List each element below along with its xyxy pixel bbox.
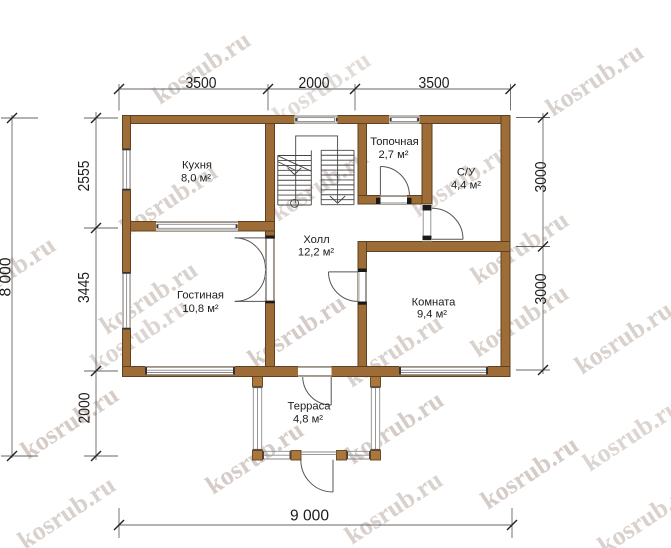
svg-text:3000: 3000 <box>533 161 550 192</box>
svg-text:3000: 3000 <box>533 273 550 304</box>
svg-text:8,0 м²: 8,0 м² <box>181 173 211 185</box>
svg-text:Гостиная: Гостиная <box>177 290 224 302</box>
svg-text:8 000: 8 000 <box>0 257 15 296</box>
svg-text:kosrub.ru: kosrub.ru <box>475 430 583 515</box>
svg-text:9,4 м²: 9,4 м² <box>417 309 447 321</box>
svg-text:kosrub.ru: kosrub.ru <box>569 295 671 380</box>
svg-text:kosrub.ru: kosrub.ru <box>592 475 671 548</box>
svg-text:kosrub.ru: kosrub.ru <box>147 25 255 110</box>
svg-text:Кухня: Кухня <box>182 160 212 172</box>
svg-text:Холл: Холл <box>303 234 329 246</box>
svg-text:С/У: С/У <box>457 167 476 179</box>
svg-text:kosrub.ru: kosrub.ru <box>465 278 573 363</box>
svg-text:kosrub.ru: kosrub.ru <box>340 385 448 470</box>
svg-text:10,8 м²: 10,8 м² <box>182 303 219 315</box>
svg-text:kosrub.ru: kosrub.ru <box>242 288 350 373</box>
svg-text:kosrub.ru: kosrub.ru <box>15 380 123 465</box>
svg-text:kosrub.ru: kosrub.ru <box>12 470 120 548</box>
svg-text:Топочная: Топочная <box>370 136 419 148</box>
svg-text:kosrub.ru: kosrub.ru <box>339 465 447 548</box>
svg-text:3500: 3500 <box>419 75 450 92</box>
svg-text:12,2 м²: 12,2 м² <box>298 247 335 259</box>
svg-text:kosrub.ru: kosrub.ru <box>339 308 447 393</box>
svg-text:9 000: 9 000 <box>290 508 329 525</box>
svg-text:4,8 м²: 4,8 м² <box>293 414 323 426</box>
svg-text:kosrub.ru: kosrub.ru <box>265 142 373 227</box>
svg-text:4,4 м²: 4,4 м² <box>451 180 481 192</box>
svg-text:2000: 2000 <box>299 75 330 92</box>
svg-text:3445: 3445 <box>76 272 93 303</box>
svg-text:2,7 м²: 2,7 м² <box>378 149 408 161</box>
svg-text:Терраса: Терраса <box>288 401 332 413</box>
svg-text:Комната: Комната <box>412 297 457 309</box>
svg-text:3500: 3500 <box>186 75 217 92</box>
svg-text:2000: 2000 <box>77 392 94 423</box>
svg-text:kosrub.ru: kosrub.ru <box>540 37 648 122</box>
svg-text:2555: 2555 <box>76 160 93 191</box>
svg-text:kosrub.ru: kosrub.ru <box>577 392 671 477</box>
